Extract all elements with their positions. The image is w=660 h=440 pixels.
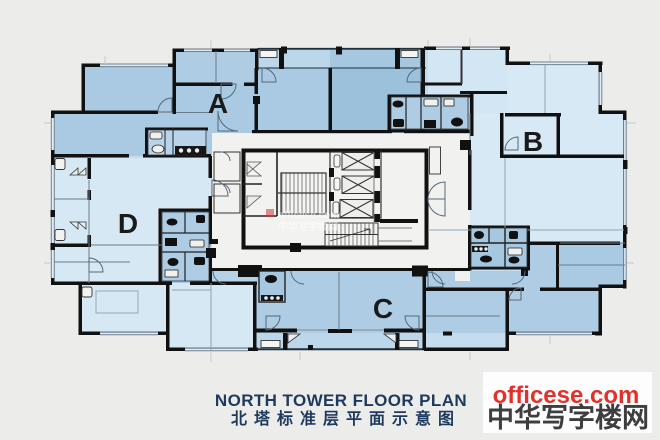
svg-text:A: A bbox=[208, 88, 228, 119]
svg-text:NORTH TOWER FLOOR PLAN: NORTH TOWER FLOOR PLAN bbox=[215, 391, 467, 410]
svg-text:officese.com: officese.com bbox=[278, 210, 339, 221]
svg-text:C: C bbox=[373, 293, 393, 324]
svg-text:中华写字楼网: 中华写字楼网 bbox=[278, 220, 338, 233]
svg-text:中华写字楼网: 中华写字楼网 bbox=[487, 402, 649, 433]
svg-text:北塔标准层平面示意图: 北塔标准层平面示意图 bbox=[231, 409, 461, 428]
svg-text:B: B bbox=[523, 126, 543, 157]
svg-text:D: D bbox=[118, 208, 138, 239]
